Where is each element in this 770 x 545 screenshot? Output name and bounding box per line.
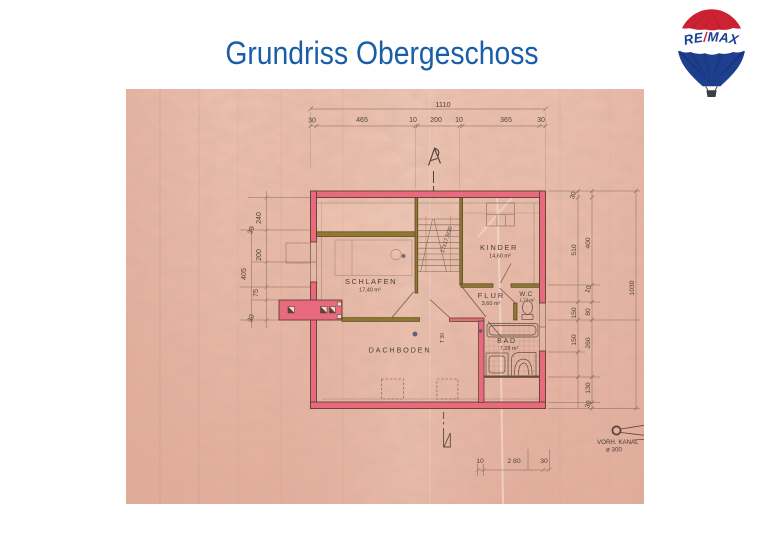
svg-text:1110: 1110	[435, 100, 450, 109]
svg-text:BAD: BAD	[497, 338, 517, 345]
svg-text:30: 30	[540, 458, 548, 465]
svg-text:10: 10	[455, 117, 463, 124]
svg-text:240: 240	[256, 212, 263, 224]
svg-text:10: 10	[409, 117, 417, 124]
svg-text:FLUR: FLUR	[478, 291, 506, 300]
svg-text:260: 260	[585, 337, 592, 349]
svg-text:200: 200	[256, 249, 263, 261]
svg-text:465: 465	[356, 117, 368, 124]
svg-text:17,40 m²: 17,40 m²	[359, 288, 381, 294]
svg-text:DACHBODEN: DACHBODEN	[369, 346, 432, 355]
svg-text:130: 130	[585, 382, 592, 394]
svg-text:30: 30	[537, 117, 545, 124]
svg-text:SCHLAFEN: SCHLAFEN	[345, 277, 397, 286]
svg-text:150: 150	[571, 307, 578, 319]
svg-text:2 80: 2 80	[507, 458, 520, 465]
svg-text:10: 10	[476, 458, 484, 465]
svg-text:150: 150	[571, 334, 578, 346]
svg-text:75: 75	[253, 289, 260, 297]
svg-text:30: 30	[308, 118, 316, 125]
svg-text:80: 80	[585, 308, 592, 316]
svg-text:7,28 m²: 7,28 m²	[500, 346, 519, 352]
svg-text:1030: 1030	[629, 280, 636, 295]
svg-text:510: 510	[571, 244, 578, 256]
svg-text:405: 405	[241, 268, 248, 280]
svg-text:365: 365	[500, 117, 512, 124]
svg-text:200: 200	[430, 117, 442, 124]
svg-text:14,60 m²: 14,60 m²	[489, 254, 511, 260]
svg-text:KINDER: KINDER	[480, 243, 518, 252]
svg-text:ø 300: ø 300	[606, 447, 622, 454]
svg-text:3,60 m²: 3,60 m²	[482, 301, 501, 307]
svg-text:T 30: T 30	[440, 333, 446, 343]
svg-text:400: 400	[585, 237, 592, 249]
svg-text:VORH. KANAL: VORH. KANAL	[597, 439, 639, 446]
svg-text:1,72 m²: 1,72 m²	[519, 298, 535, 303]
